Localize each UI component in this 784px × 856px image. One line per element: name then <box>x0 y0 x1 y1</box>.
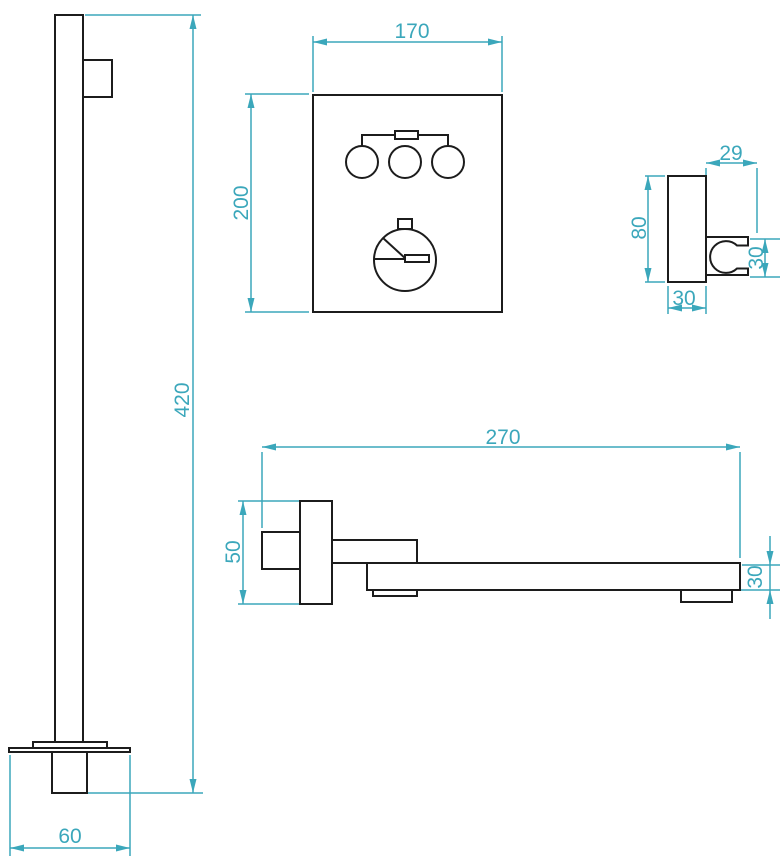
dimension-label: 60 <box>58 825 81 848</box>
rail-outline <box>55 15 83 742</box>
diverter-button-right <box>432 146 464 178</box>
spout-end-cap <box>681 590 732 602</box>
dimension-label: 30 <box>744 565 767 588</box>
dim-holder-bracket-width: 29 <box>706 142 757 233</box>
dimension-label: 270 <box>485 426 520 449</box>
dim-panel-width: 170 <box>313 20 502 92</box>
technical-drawing-page: 420 60 170 200 29 <box>0 0 784 856</box>
dial-top-button <box>398 219 412 229</box>
wall-spout-view <box>262 501 740 604</box>
rail-base-plate <box>9 748 130 752</box>
rail-wall-bracket <box>83 60 112 97</box>
diverter-button-left <box>346 146 378 178</box>
dimension-label: 30 <box>745 246 768 269</box>
rail-base-pipe <box>52 752 87 793</box>
button-label-plate <box>395 131 418 139</box>
dimension-label: 420 <box>171 382 194 417</box>
dimension-label: 200 <box>230 185 253 220</box>
dial-handle <box>405 255 429 262</box>
dim-rail-height: 420 <box>85 15 203 793</box>
dim-spout-length: 270 <box>262 426 740 558</box>
holder-clip <box>706 237 748 275</box>
technical-drawing-canvas: 420 60 170 200 29 <box>0 0 784 856</box>
dimension-label: 170 <box>394 20 429 43</box>
dimension-label: 50 <box>222 540 245 563</box>
dim-panel-height: 200 <box>230 94 309 312</box>
spout-pivot-arm <box>332 540 417 563</box>
dimension-label: 80 <box>628 216 651 239</box>
dimension-label: 30 <box>672 287 695 310</box>
dim-holder-clip-height: 30 <box>745 239 780 277</box>
holder-body <box>668 176 706 282</box>
diverter-button-middle <box>389 146 421 178</box>
shower-rail-view <box>9 15 130 793</box>
hand-shower-holder-view <box>668 176 748 282</box>
spout-wall-plate <box>300 501 332 604</box>
spout-inlet-stub <box>262 532 300 569</box>
dim-holder-body-height: 80 <box>628 176 665 282</box>
dim-holder-body-width: 30 <box>668 286 706 314</box>
spout-body-bar <box>367 563 740 590</box>
mixer-panel-view <box>313 95 502 312</box>
dimension-label: 29 <box>719 142 742 165</box>
spout-aerator <box>373 590 417 596</box>
